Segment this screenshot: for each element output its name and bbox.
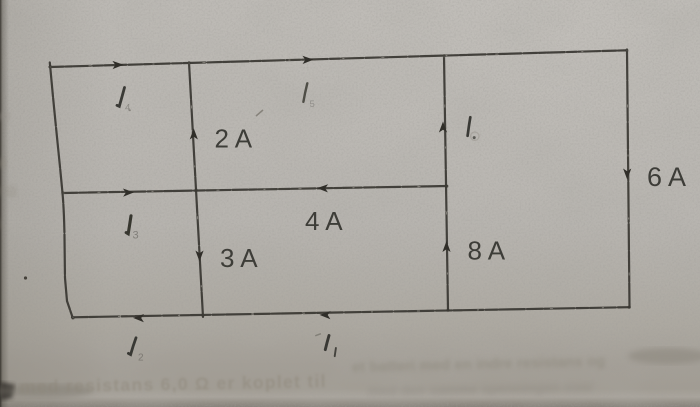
svg-text:5: 5 (310, 99, 315, 110)
svg-text:0 Ω: 0 Ω (0, 183, 17, 199)
svg-text:1: 1 (0, 216, 3, 231)
svg-text:2: 2 (138, 353, 144, 364)
svg-text:2 A: 2 A (215, 124, 253, 154)
svg-text:4: 4 (125, 103, 130, 114)
svg-text:4 A: 4 A (305, 206, 343, 236)
svg-text:8 A: 8 A (468, 236, 506, 266)
svg-text:6 A: 6 A (647, 162, 686, 192)
svg-text:M: M (0, 155, 7, 172)
svg-text:3 A: 3 A (220, 243, 258, 273)
svg-text:ee: ee (0, 108, 10, 123)
svg-text:3: 3 (133, 230, 139, 242)
